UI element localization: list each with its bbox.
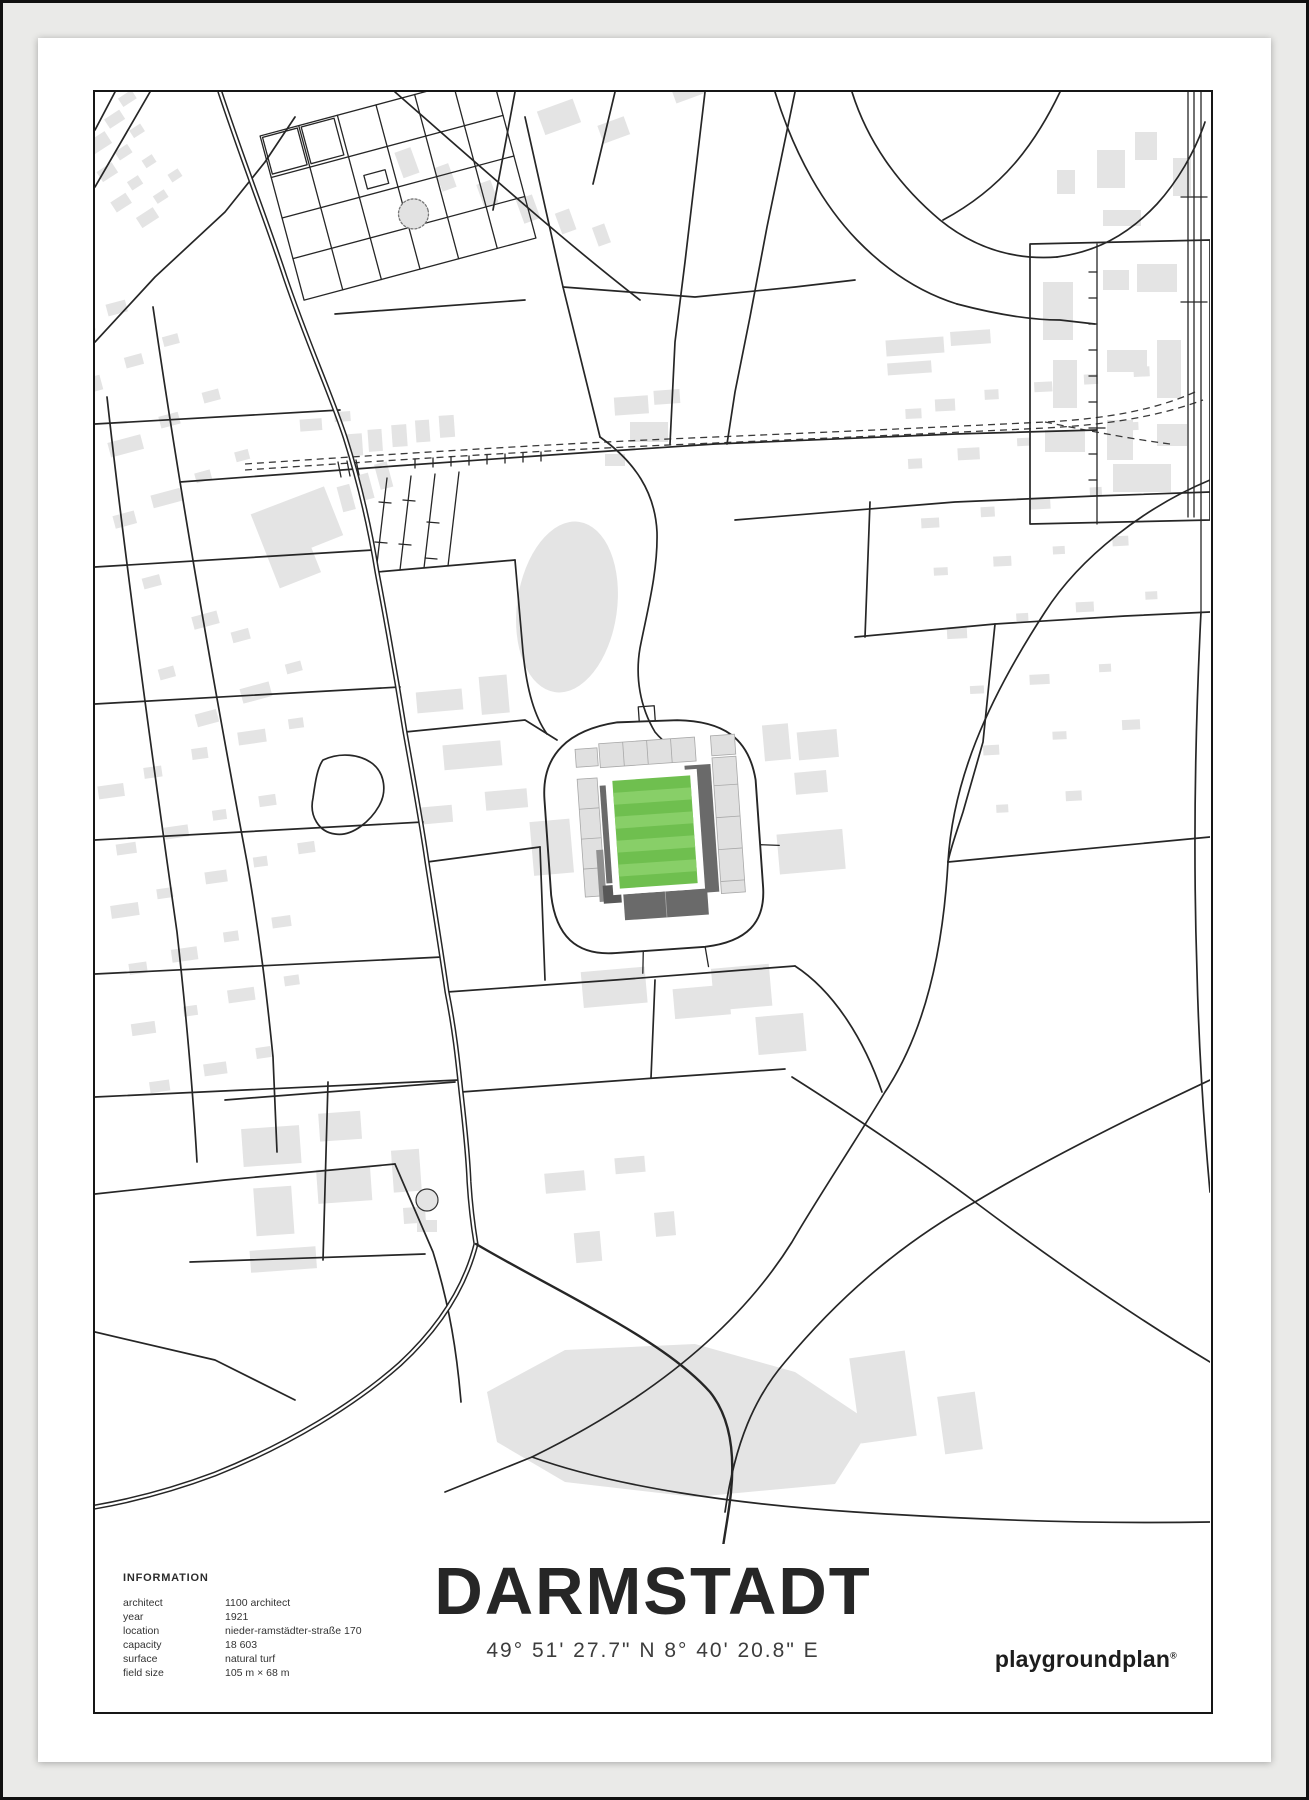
running-track — [506, 515, 629, 699]
stadium-pitch — [605, 769, 705, 895]
stadium — [538, 698, 787, 979]
city-map — [95, 92, 1210, 1547]
info-value: 105 m × 68 m — [225, 1666, 290, 1680]
info-row: field size 105 m × 68 m — [123, 1666, 362, 1680]
brand-logo: playgroundplan® — [995, 1646, 1177, 1673]
rotunda — [416, 1189, 438, 1211]
map-frame: INFORMATION architect 1100 architect yea… — [93, 90, 1213, 1714]
brand-name: playgroundplan — [995, 1646, 1170, 1672]
page-title: DARMSTADT — [95, 1558, 1211, 1625]
registered-mark-icon: ® — [1170, 1650, 1177, 1660]
poster-photo: INFORMATION architect 1100 architect yea… — [0, 0, 1309, 1800]
poster: INFORMATION architect 1100 architect yea… — [38, 38, 1271, 1762]
fountain-icon — [395, 196, 432, 233]
poster-footer: INFORMATION architect 1100 architect yea… — [95, 1544, 1211, 1712]
info-label: field size — [123, 1666, 225, 1680]
